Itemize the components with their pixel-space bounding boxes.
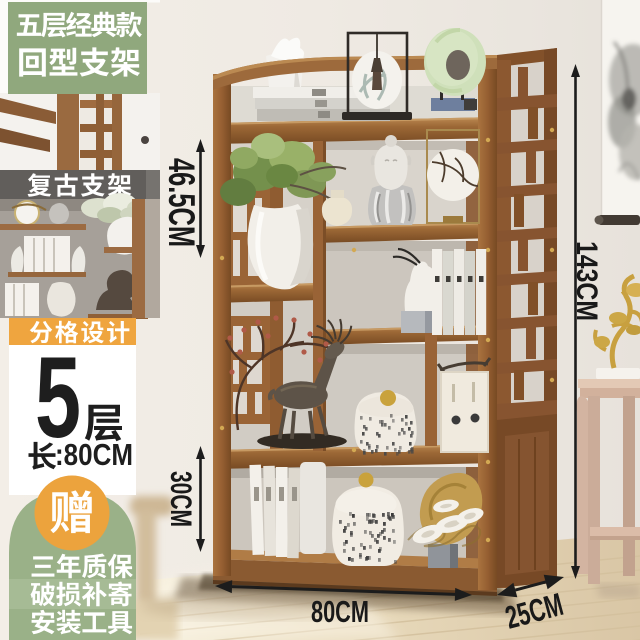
svg-text:143CM: 143CM <box>570 241 603 321</box>
svg-text:80CM: 80CM <box>311 594 369 629</box>
svg-text:30CM: 30CM <box>164 471 197 527</box>
svg-text:46.5CM: 46.5CM <box>161 158 202 247</box>
svg-text::80CM: :80CM <box>55 437 133 472</box>
